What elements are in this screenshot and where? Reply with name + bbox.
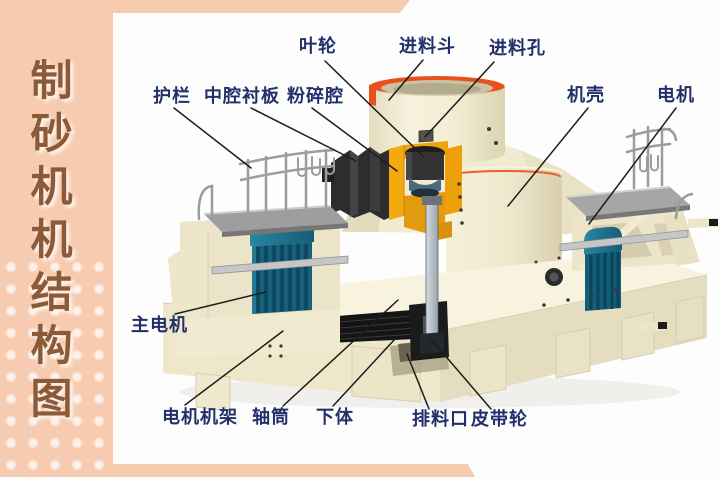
label-impeller: 叶轮 <box>299 37 337 55</box>
label-casing: 机壳 <box>567 86 605 104</box>
label-motor: 电机 <box>657 86 695 104</box>
label-feed-hopper: 进料斗 <box>399 37 456 55</box>
label-main-motor: 主电机 <box>131 316 188 334</box>
label-shaft-tube: 轴筒 <box>252 408 290 426</box>
main-motor-module <box>168 206 348 358</box>
machine-illustration <box>0 0 720 477</box>
impeller-shape <box>405 146 445 198</box>
structure-diagram-page: 制砂机机结构图 <box>0 0 720 477</box>
label-discharge-port: 排料口 <box>412 410 469 428</box>
label-lower-body: 下体 <box>316 408 354 426</box>
label-crushing-chamber: 粉碎腔 <box>287 87 344 105</box>
label-guardrail: 护栏 <box>153 87 191 105</box>
label-belt-pulley: 皮带轮 <box>471 410 528 428</box>
label-feed-hole: 进料孔 <box>489 39 546 57</box>
label-motor-frame: 电机机架 <box>162 408 238 426</box>
label-cavity-liner: 中腔衬板 <box>204 87 280 105</box>
